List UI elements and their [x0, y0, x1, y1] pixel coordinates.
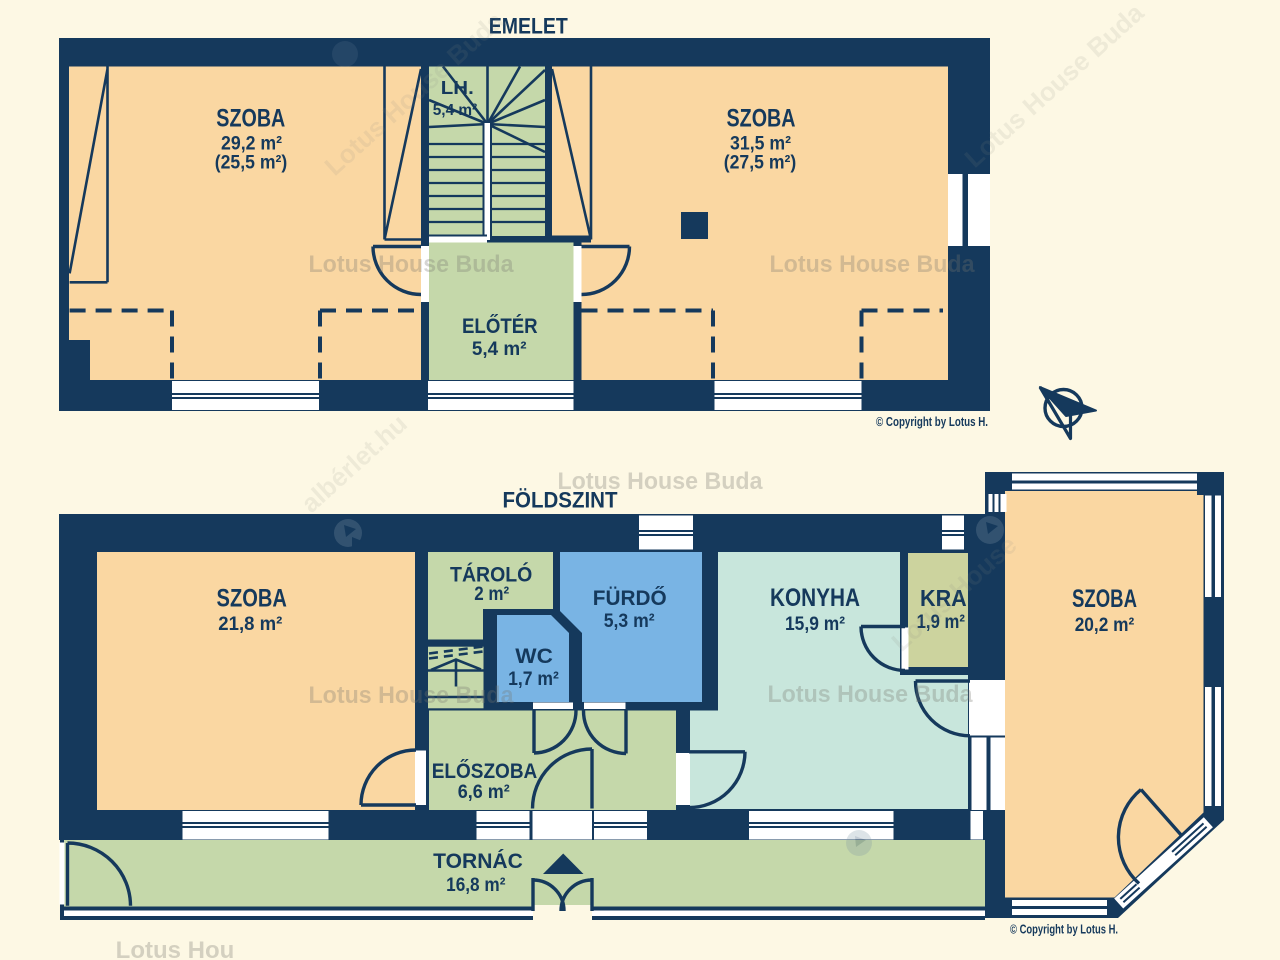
- svg-text:21,8 m²: 21,8 m²: [218, 613, 282, 635]
- svg-text:20,2 m²: 20,2 m²: [1075, 614, 1135, 636]
- svg-text:Lotus House Buda: Lotus House Buda: [309, 682, 515, 709]
- svg-text:FÜRDŐ: FÜRDŐ: [593, 587, 667, 610]
- svg-text:Lotus Hou: Lotus Hou: [116, 937, 235, 960]
- svg-text:1,7 m²: 1,7 m²: [508, 668, 559, 690]
- svg-text:5,3 m²: 5,3 m²: [604, 610, 655, 632]
- svg-text:Lotus House Buda: Lotus House Buda: [309, 251, 515, 278]
- svg-text:15,9 m²: 15,9 m²: [785, 613, 845, 635]
- svg-text:Lotus House Buda: Lotus House Buda: [558, 468, 764, 495]
- svg-text:5,4 m²: 5,4 m²: [433, 102, 478, 119]
- svg-text:TORNÁC: TORNÁC: [433, 850, 523, 873]
- svg-text:Lotus House Buda: Lotus House Buda: [768, 681, 974, 708]
- svg-text:WC: WC: [515, 645, 553, 668]
- svg-text:(27,5 m²): (27,5 m²): [724, 152, 797, 174]
- svg-text:16,8 m²: 16,8 m²: [446, 874, 506, 896]
- svg-text:SZOBA: SZOBA: [1072, 585, 1137, 613]
- svg-text:ELŐSZOBA: ELŐSZOBA: [432, 760, 538, 783]
- svg-text:SZOBA: SZOBA: [727, 105, 796, 133]
- svg-text:Lotus House Buda: Lotus House Buda: [770, 251, 976, 278]
- svg-text:ELŐTÉR: ELŐTÉR: [462, 315, 538, 338]
- svg-text:© Copyright by Lotus H.: © Copyright by Lotus H.: [1010, 922, 1118, 937]
- svg-text:SZOBA: SZOBA: [217, 585, 287, 613]
- svg-text:6,6 m²: 6,6 m²: [458, 781, 510, 803]
- svg-text:SZOBA: SZOBA: [216, 105, 285, 133]
- svg-text:© Copyright by Lotus H.: © Copyright by Lotus H.: [876, 414, 988, 429]
- svg-text:5,4 m²: 5,4 m²: [472, 338, 527, 360]
- svg-text:KONYHA: KONYHA: [770, 584, 860, 612]
- svg-text:2 m²: 2 m²: [474, 583, 509, 605]
- svg-text:(25,5 m²): (25,5 m²): [215, 152, 288, 174]
